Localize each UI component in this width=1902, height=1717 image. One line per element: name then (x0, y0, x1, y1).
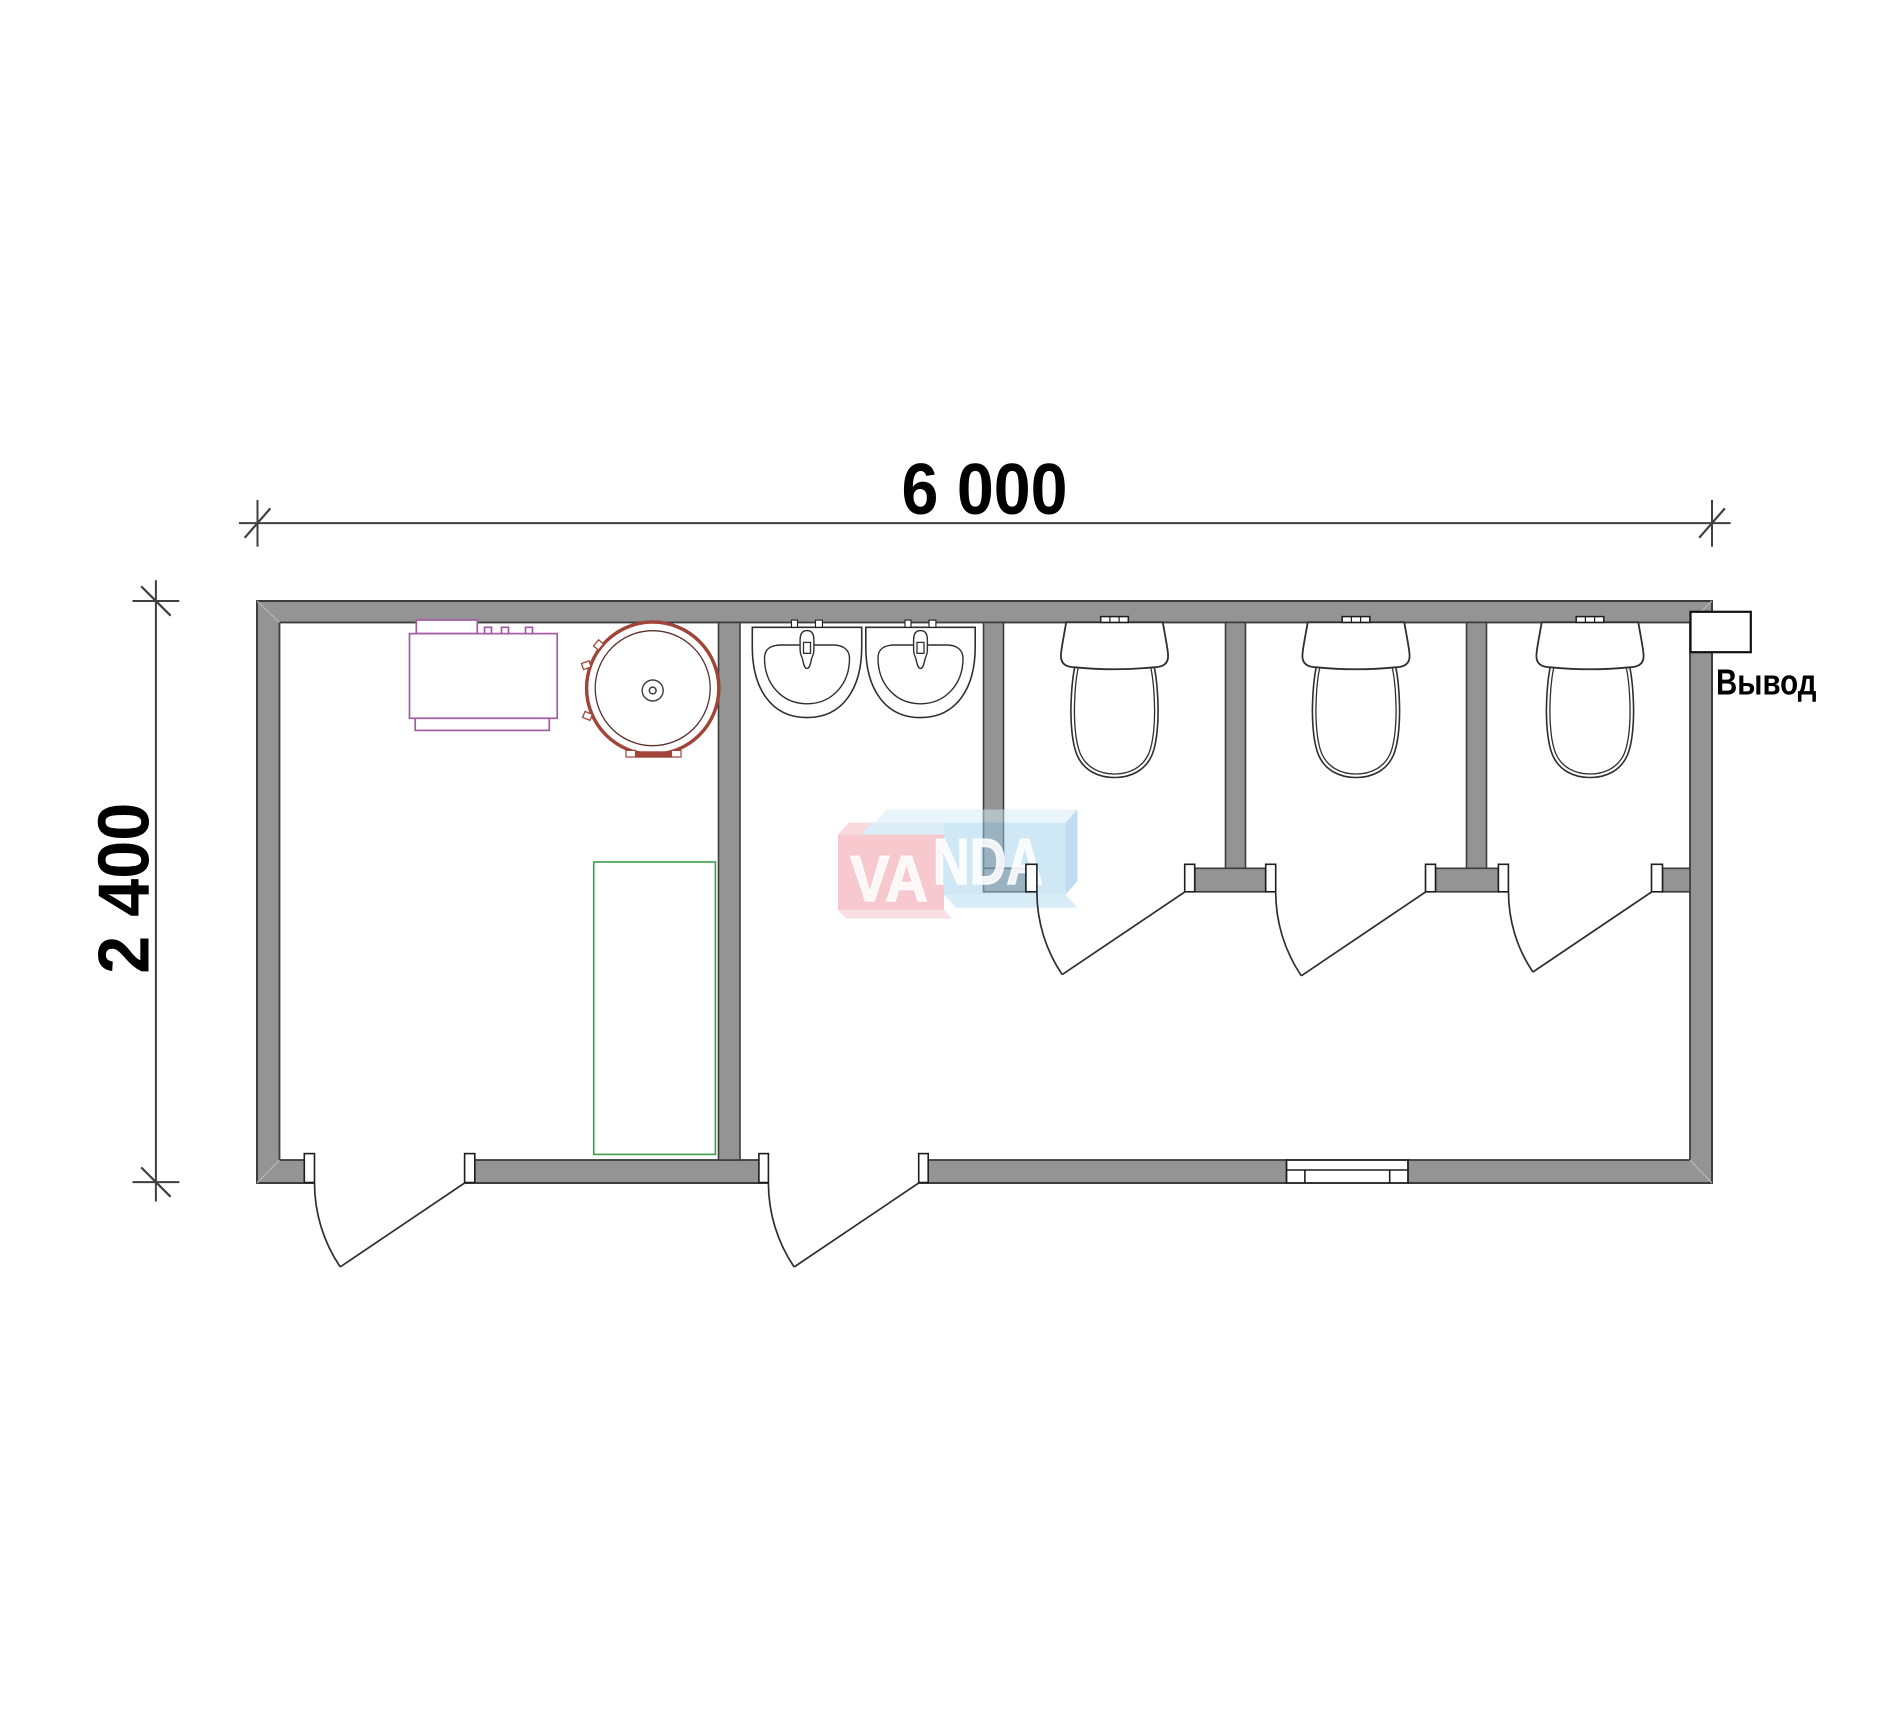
svg-text:Вывод: Вывод (1716, 662, 1817, 702)
svg-text:2 400: 2 400 (83, 803, 164, 974)
svg-text:VA: VA (850, 842, 928, 915)
svg-text:6 000: 6 000 (902, 449, 1068, 530)
